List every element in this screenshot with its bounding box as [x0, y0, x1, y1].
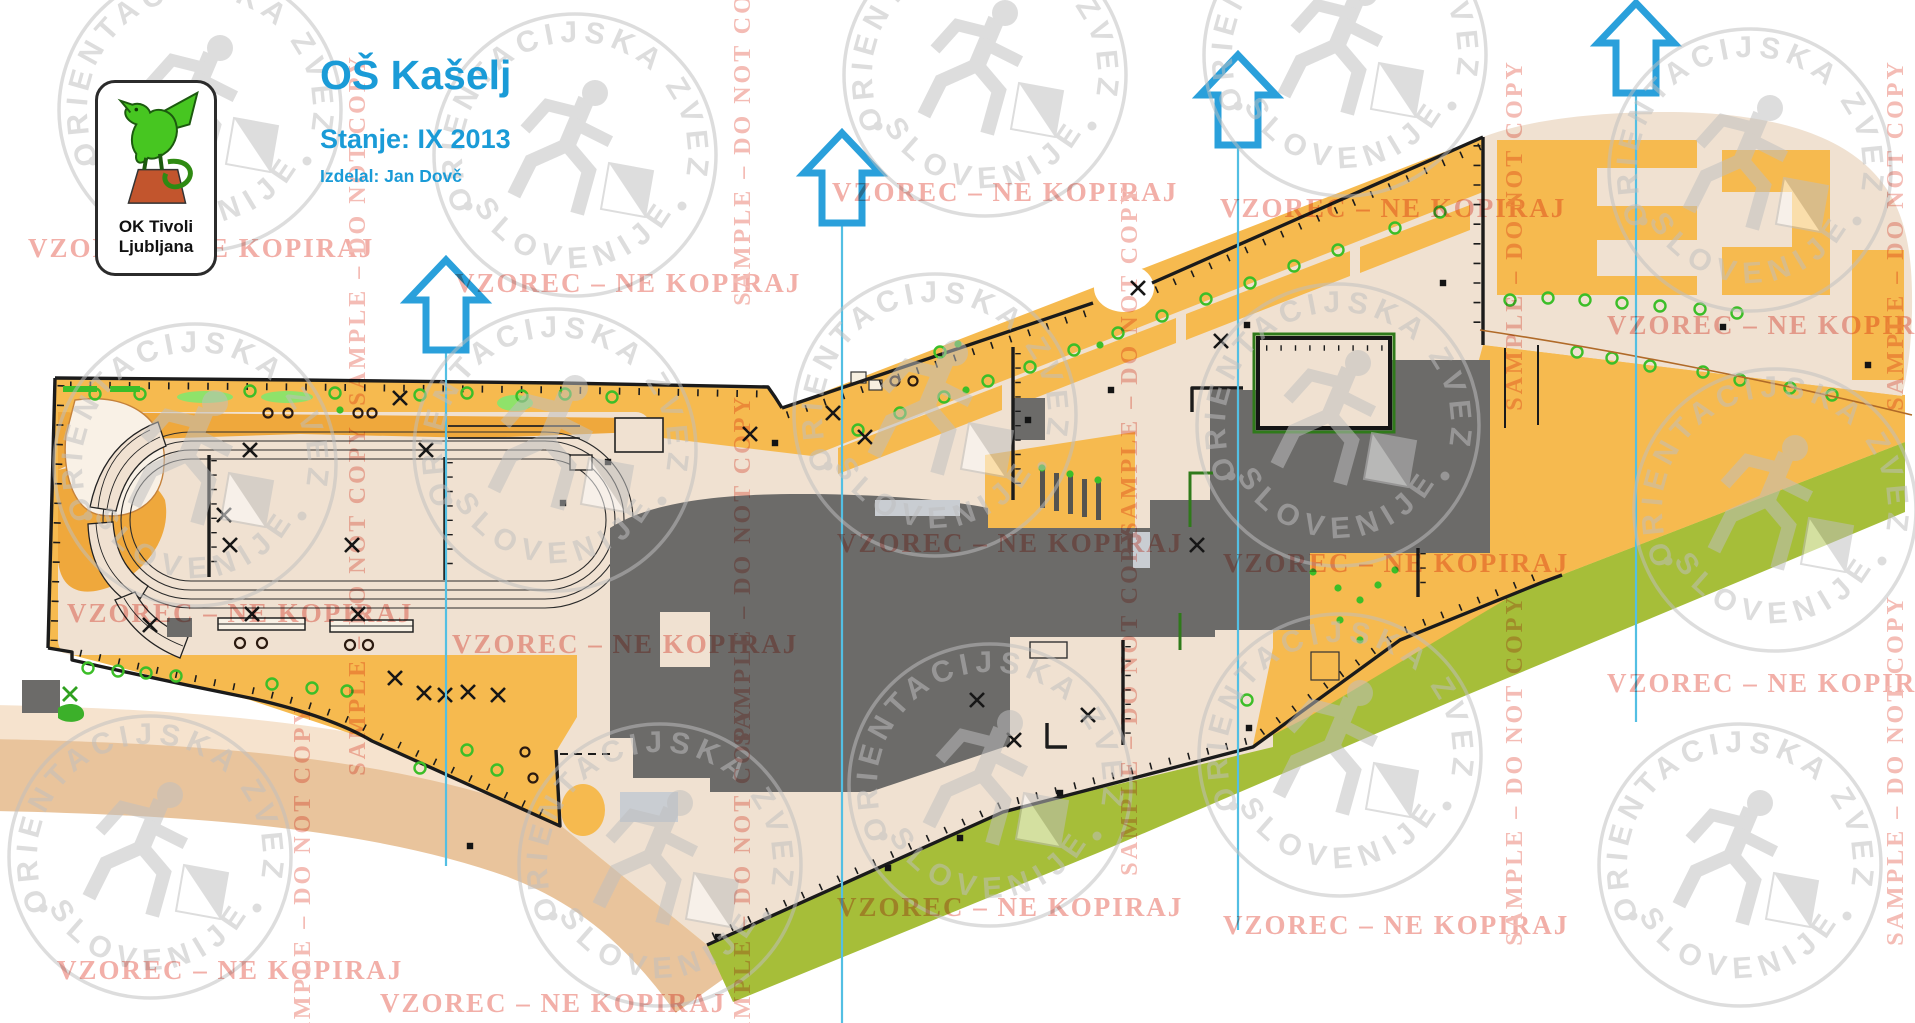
sample-watermark-text: SAMPLE – DO NOT COPY: [730, 704, 756, 1023]
vzorec-watermark-text: VZOREC – NE KOPIRAJ: [1607, 668, 1915, 698]
sample-watermark-text: SAMPLE – DO NOT COPY: [730, 0, 756, 306]
sample-watermark-text: SAMPLE – DO NOT COPY: [290, 704, 316, 1023]
outlined-structure: [615, 418, 663, 452]
ozs-stamp-watermark: [1599, 724, 1881, 1006]
club-name-line2: Ljubljana: [98, 238, 214, 256]
sample-watermark-text: SAMPLE – DO NOT COPY: [1502, 594, 1528, 946]
screenshot-root: ORIENTACIJSKA ZVEZA SLOVENIJE: [0, 0, 1915, 1023]
map-credit: Izdelal: Jan Dovč: [320, 166, 462, 187]
sample-watermark-text: SAMPLE – DO NOT COPY: [345, 424, 371, 776]
sample-watermark-text: SAMPLE – DO NOT COPY: [345, 54, 371, 406]
map-title: OŠ Kašelj: [320, 52, 511, 99]
vzorec-watermark-text: VZOREC – NE KOPIRAJ: [380, 988, 726, 1018]
sample-watermark-text: SAMPLE – DO NOT COPY: [1883, 594, 1909, 946]
green-x-feature: [63, 687, 77, 701]
vzorec-watermark-text: VZOREC – NE KOPIRAJ: [57, 955, 403, 985]
sample-watermark-text: SAMPLE – DO NOT COPY: [1117, 524, 1143, 876]
sample-watermark-text: SAMPLE – DO NOT COPY: [1117, 184, 1143, 536]
dragon-logo-icon: [101, 83, 211, 211]
vzorec-watermark-text: VZOREC – NE KOPIRAJ: [837, 892, 1183, 922]
thicket-blob: [58, 704, 84, 722]
club-logo-card: OK Tivoli Ljubljana: [95, 80, 217, 276]
map-status: Stanje: IX 2013: [320, 124, 511, 155]
orienteering-map: ORIENTACIJSKA ZVEZA SLOVENIJE: [0, 0, 1915, 1023]
vzorec-watermark-text: VZOREC – NE KOPIRAJ: [1223, 548, 1569, 578]
sample-watermark-text: SAMPLE – DO NOT COPY: [730, 394, 756, 746]
vzorec-watermark-text: VZOREC – NE KOPIRAJ: [1607, 310, 1915, 340]
sample-watermark-text: SAMPLE – DO NOT COPY: [1883, 59, 1909, 411]
club-name-line1: OK Tivoli: [98, 218, 214, 236]
small-building: [22, 680, 60, 713]
sample-watermark-text: SAMPLE – DO NOT COPY: [1502, 59, 1528, 411]
